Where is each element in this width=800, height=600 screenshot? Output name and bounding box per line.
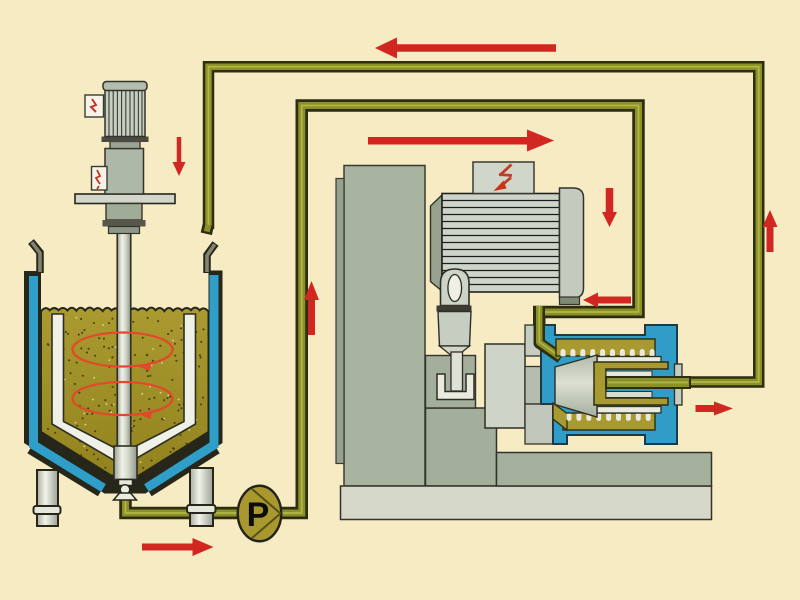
svg-text:P: P [247,496,270,534]
